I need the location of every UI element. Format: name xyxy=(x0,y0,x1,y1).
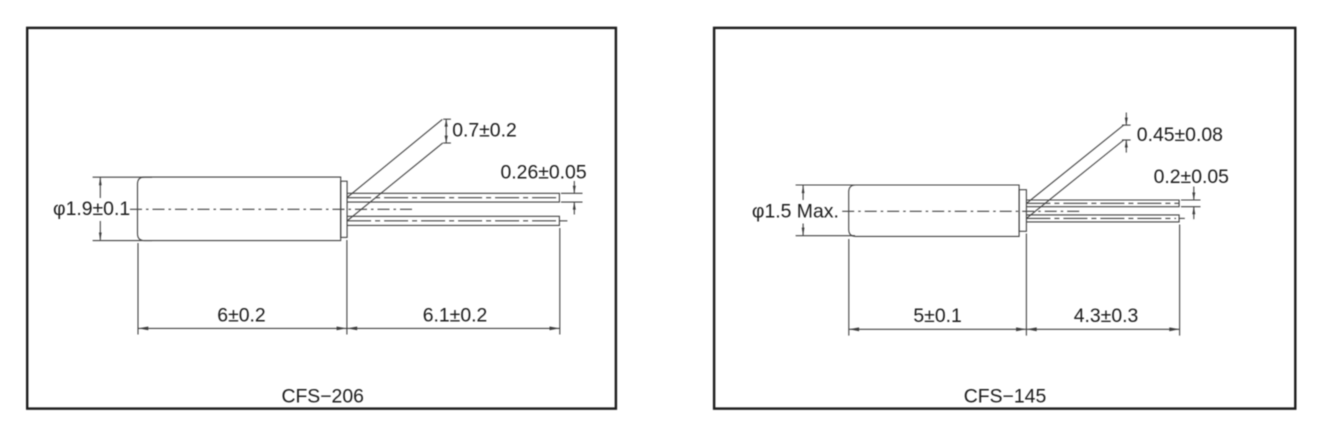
svg-text:4.3±0.3: 4.3±0.3 xyxy=(1074,305,1139,327)
svg-text:0.45±0.08: 0.45±0.08 xyxy=(1137,124,1223,146)
svg-text:0.2±0.05: 0.2±0.05 xyxy=(1154,166,1229,188)
svg-text:CFS−145: CFS−145 xyxy=(964,385,1046,407)
svg-text:0.7±0.2: 0.7±0.2 xyxy=(452,120,517,142)
svg-text:6.1±0.2: 6.1±0.2 xyxy=(423,305,488,327)
svg-text:5±0.1: 5±0.1 xyxy=(913,305,961,327)
svg-text:φ1.9±0.1: φ1.9±0.1 xyxy=(53,198,130,220)
svg-text:0.26±0.05: 0.26±0.05 xyxy=(501,161,587,183)
svg-text:φ1.5 Max.: φ1.5 Max. xyxy=(752,201,839,223)
svg-text:CFS−206: CFS−206 xyxy=(281,385,363,407)
svg-text:6±0.2: 6±0.2 xyxy=(217,305,265,327)
